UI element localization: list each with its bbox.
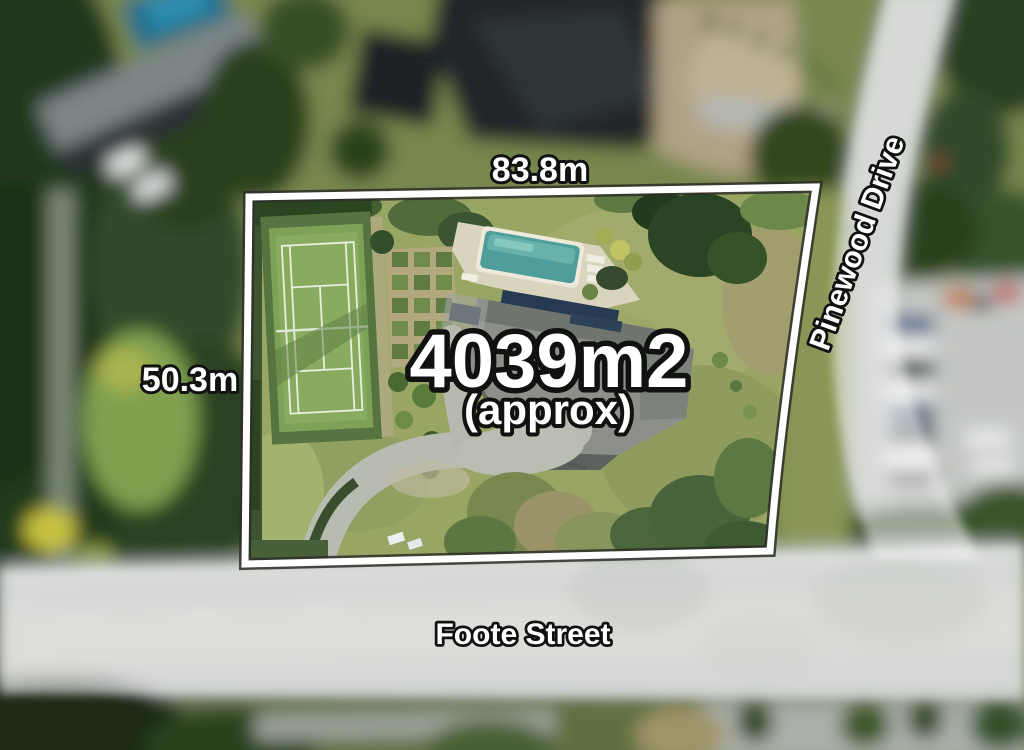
top-dimension-label: 83.8m (492, 151, 588, 189)
aerial-property-map: 4039m2 (approx) 83.8m 50.3m Foote Street… (0, 0, 1024, 750)
aerial-map-canvas: 4039m2 (approx) 83.8m 50.3m Foote Street… (0, 0, 1024, 750)
foote-street-label: Foote Street (435, 618, 610, 651)
tennis-court (259, 195, 394, 445)
left-dimension-label: 50.3m (142, 361, 238, 399)
area-qualifier-label: (approx) (464, 386, 632, 433)
